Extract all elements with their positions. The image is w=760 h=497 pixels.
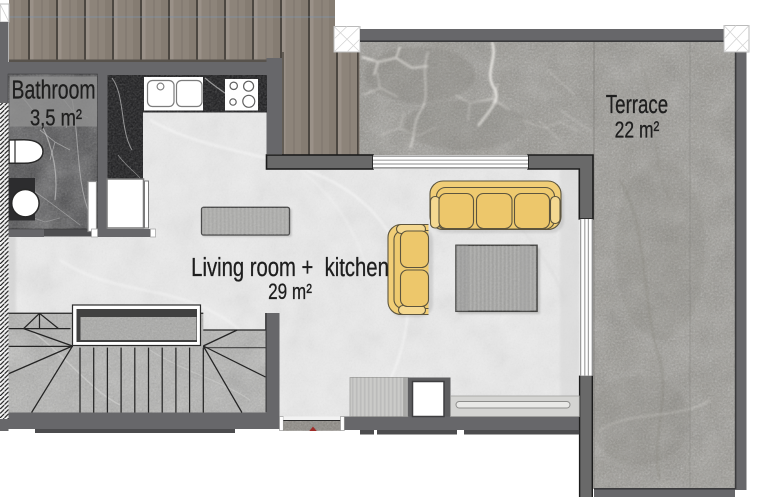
- svg-text:Living room + kitchen: Living room + kitchen: [191, 253, 389, 282]
- svg-text:29 m²: 29 m²: [268, 280, 312, 305]
- svg-text:3,5 m²: 3,5 m²: [30, 106, 82, 131]
- svg-text:22 m²: 22 m²: [615, 118, 660, 143]
- svg-text:Bathroom: Bathroom: [12, 76, 96, 104]
- svg-text:Terrace: Terrace: [606, 89, 668, 119]
